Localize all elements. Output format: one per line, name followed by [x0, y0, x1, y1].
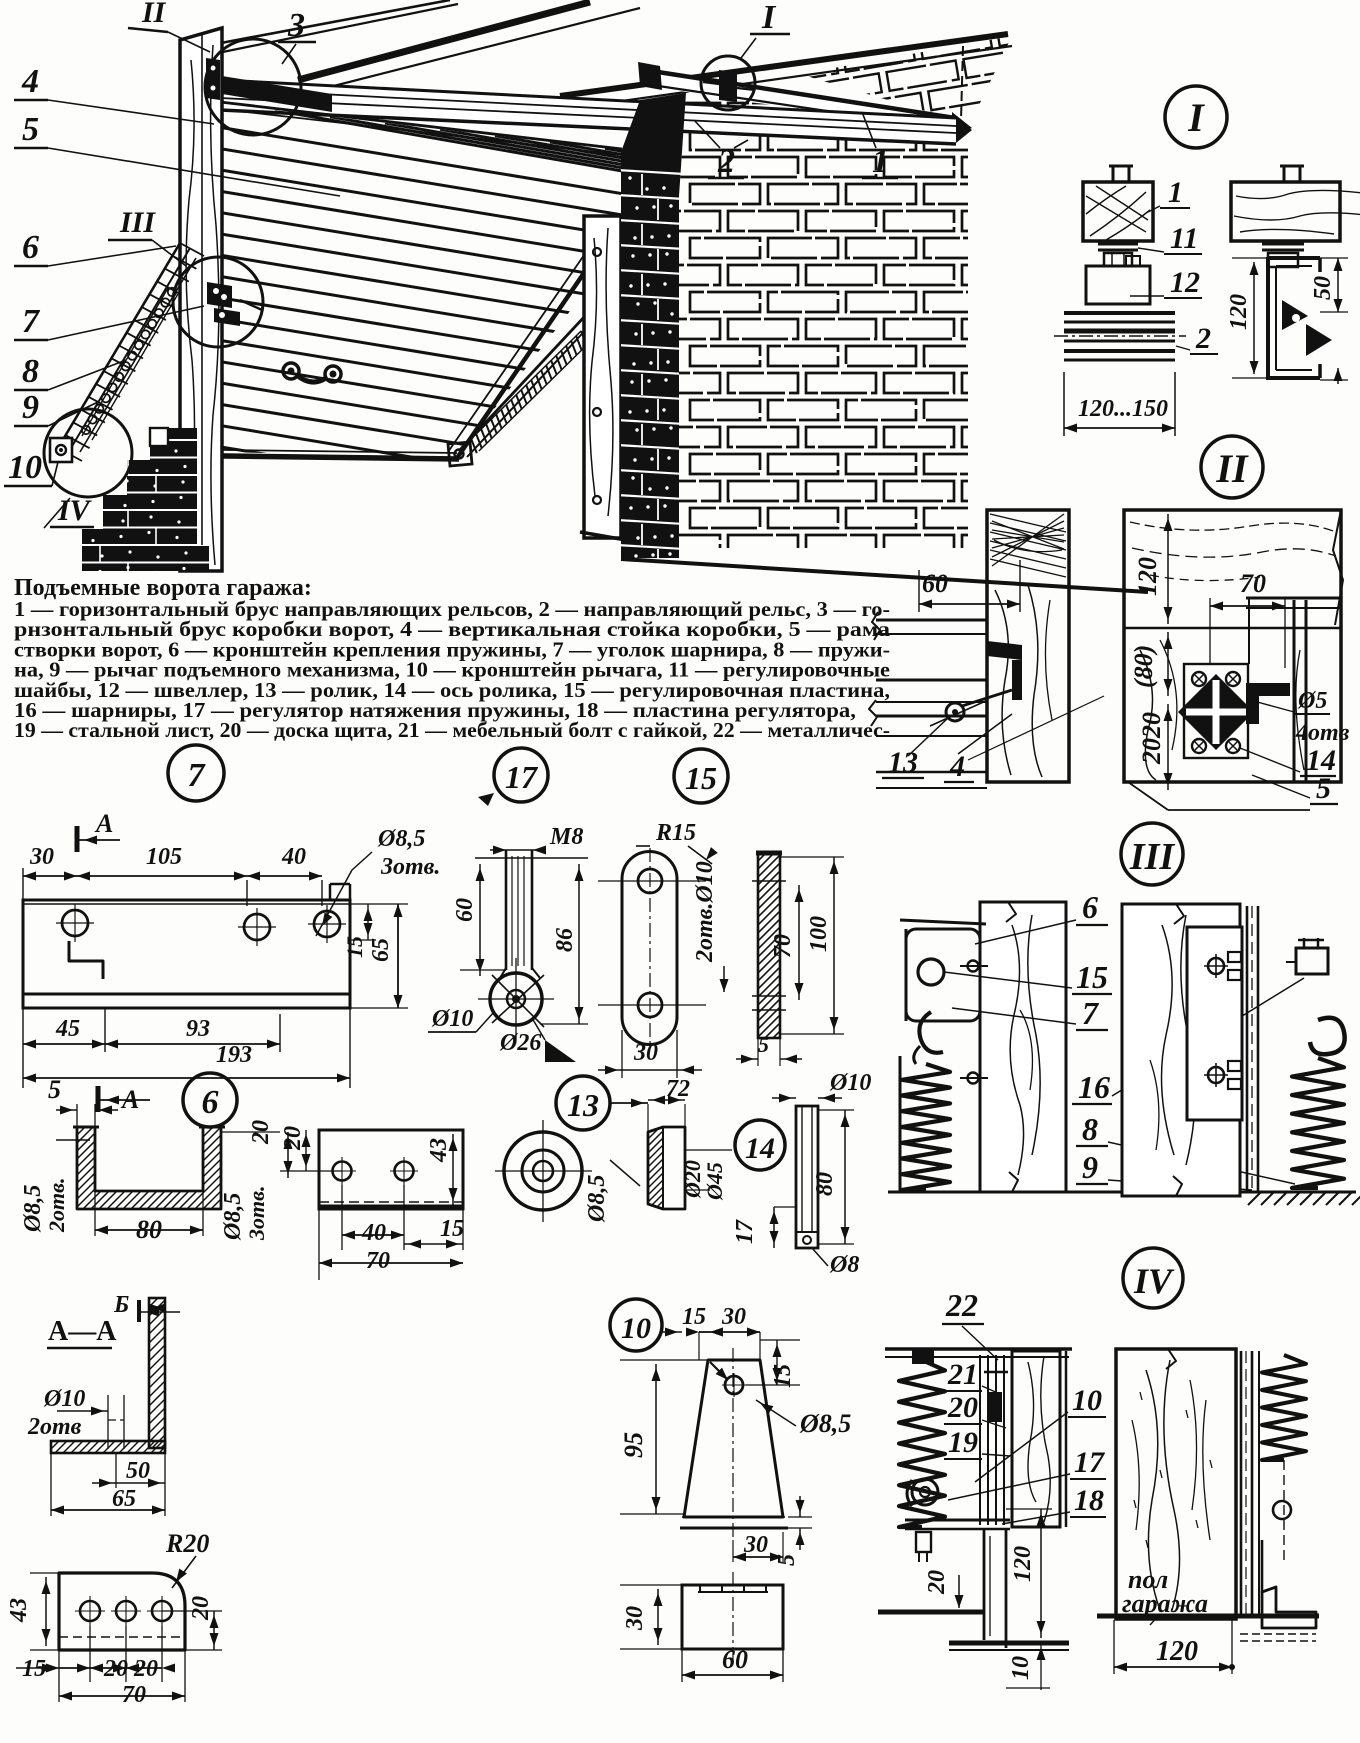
svg-text:Ø10: Ø10 [829, 1070, 871, 1096]
svg-text:70: 70 [122, 1682, 146, 1708]
svg-text:3отв.: 3отв. [380, 854, 440, 880]
svg-text:10: 10 [8, 449, 42, 486]
svg-text:6: 6 [1082, 889, 1098, 925]
svg-text:6: 6 [202, 1084, 219, 1121]
svg-text:1: 1 [1168, 176, 1183, 209]
svg-text:2отв: 2отв [27, 1414, 82, 1440]
svg-text:Ø10: Ø10 [431, 1006, 473, 1032]
svg-text:30: 30 [721, 1304, 746, 1330]
svg-text:R15: R15 [655, 820, 696, 846]
svg-text:5: 5 [22, 111, 39, 148]
svg-text:4: 4 [949, 750, 965, 783]
svg-text:14: 14 [745, 1132, 775, 1165]
svg-text:20: 20 [924, 1570, 950, 1595]
svg-text:80: 80 [812, 1172, 838, 1196]
svg-text:10: 10 [1072, 1384, 1102, 1417]
svg-text:А—А: А—А [48, 1316, 117, 1347]
svg-text:120: 120 [1156, 1636, 1198, 1667]
svg-text:9: 9 [22, 389, 39, 426]
svg-text:2: 2 [1195, 322, 1211, 355]
svg-text:5: 5 [48, 1075, 61, 1104]
svg-text:IV: IV [57, 494, 93, 527]
svg-text:13: 13 [567, 1087, 599, 1123]
svg-text:20: 20 [947, 1391, 978, 1424]
svg-text:22: 22 [945, 1287, 978, 1323]
svg-text:30: 30 [29, 844, 54, 870]
svg-text:120: 120 [1010, 1546, 1036, 1582]
svg-text:1: 1 [872, 143, 889, 180]
svg-text:18: 18 [1074, 1484, 1104, 1517]
svg-text:19: 19 [948, 1426, 978, 1459]
svg-text:3: 3 [287, 7, 305, 44]
svg-text:А: А [94, 809, 113, 838]
svg-text:12: 12 [1170, 266, 1200, 299]
svg-text:30: 30 [622, 1606, 648, 1631]
svg-text:Ø8,5: Ø8,5 [20, 1185, 46, 1233]
svg-text:70: 70 [1240, 569, 1266, 598]
svg-text:86: 86 [552, 928, 578, 952]
svg-text:II: II [1215, 446, 1249, 491]
svg-text:Ø8,5: Ø8,5 [377, 826, 425, 852]
svg-text:50: 50 [1310, 276, 1336, 300]
svg-text:30: 30 [743, 1532, 768, 1558]
svg-text:7: 7 [22, 303, 41, 340]
svg-text:65: 65 [112, 1486, 136, 1512]
svg-text:20: 20 [280, 1126, 306, 1151]
svg-text:М8: М8 [549, 824, 583, 850]
svg-text:40: 40 [361, 1220, 386, 1246]
svg-text:43: 43 [6, 1598, 32, 1623]
svg-text:15: 15 [342, 936, 367, 958]
svg-text:Ø5: Ø5 [1297, 688, 1327, 714]
svg-text:Ø8,5: Ø8,5 [584, 1175, 610, 1223]
svg-text:43: 43 [426, 1138, 452, 1163]
svg-text:30: 30 [633, 1040, 658, 1066]
svg-text:5: 5 [758, 1032, 769, 1057]
svg-text:2отв.Ø10: 2отв.Ø10 [692, 861, 718, 963]
svg-text:21: 21 [947, 1358, 978, 1391]
svg-text:8: 8 [22, 353, 39, 390]
svg-text:70: 70 [770, 934, 796, 958]
svg-text:Б: Б [113, 1292, 129, 1318]
svg-text:100: 100 [806, 916, 832, 952]
svg-text:Ø8: Ø8 [829, 1252, 859, 1278]
svg-text:2020: 2020 [1137, 712, 1166, 765]
svg-text:15: 15 [440, 1216, 464, 1242]
svg-text:III: III [1129, 836, 1176, 878]
svg-text:60: 60 [452, 898, 478, 922]
svg-text:70: 70 [366, 1248, 390, 1274]
svg-text:Ø45: Ø45 [702, 1162, 727, 1201]
svg-text:4: 4 [21, 63, 39, 100]
svg-text:45: 45 [55, 1016, 80, 1042]
svg-text:40: 40 [281, 844, 306, 870]
svg-text:17: 17 [505, 759, 539, 795]
svg-text:120: 120 [1226, 294, 1252, 330]
svg-text:19 — стальной лист, 20 — доска: 19 — стальной лист, 20 — доска щита, 21 … [14, 718, 890, 742]
svg-text:93: 93 [186, 1016, 210, 1042]
svg-text:7: 7 [1082, 995, 1100, 1031]
svg-text:III: III [119, 206, 156, 239]
svg-text:Ø10: Ø10 [43, 1386, 85, 1412]
svg-text:95: 95 [619, 1432, 648, 1458]
svg-text:2отв.: 2отв. [44, 1178, 69, 1233]
svg-text:4отв: 4отв [1295, 720, 1350, 746]
svg-text:50: 50 [126, 1458, 150, 1484]
svg-text:105: 105 [146, 844, 182, 870]
svg-text:3отв.: 3отв. [244, 1186, 269, 1241]
svg-text:120: 120 [1133, 557, 1162, 596]
svg-text:(80): (80) [1129, 645, 1158, 688]
svg-text:IV: IV [1133, 1261, 1175, 1301]
svg-text:9: 9 [1082, 1149, 1098, 1185]
svg-text:60: 60 [922, 569, 948, 598]
svg-text:5: 5 [1316, 772, 1331, 805]
svg-text:15: 15 [685, 760, 717, 796]
svg-text:Ø8,5: Ø8,5 [799, 1409, 851, 1438]
svg-text:10: 10 [621, 1312, 651, 1345]
svg-text:17: 17 [732, 1219, 758, 1244]
svg-text:R20: R20 [165, 1529, 209, 1558]
svg-text:60: 60 [722, 1645, 748, 1674]
svg-text:7: 7 [188, 757, 207, 794]
svg-text:65: 65 [368, 938, 394, 962]
svg-text:I: I [761, 0, 777, 36]
svg-text:193: 193 [216, 1042, 252, 1068]
svg-text:5: 5 [774, 1554, 800, 1566]
svg-text:120...150: 120...150 [1078, 396, 1168, 422]
svg-text:2: 2 [717, 143, 735, 180]
svg-text:17: 17 [1074, 1446, 1105, 1479]
svg-text:15: 15 [682, 1304, 706, 1330]
svg-text:Ø26: Ø26 [499, 1030, 541, 1056]
svg-text:15: 15 [1076, 959, 1108, 995]
svg-text:10: 10 [1008, 1656, 1034, 1680]
svg-text:20: 20 [188, 1596, 214, 1621]
svg-text:6: 6 [22, 229, 39, 266]
svg-text:II: II [141, 0, 167, 29]
svg-text:16: 16 [1078, 1069, 1110, 1105]
svg-text:Ø8,5: Ø8,5 [220, 1193, 246, 1241]
svg-text:8: 8 [1082, 1111, 1098, 1147]
svg-text:11: 11 [1170, 222, 1198, 255]
svg-text:I: I [1187, 95, 1205, 140]
svg-text:гаража: гаража [1122, 1589, 1208, 1618]
